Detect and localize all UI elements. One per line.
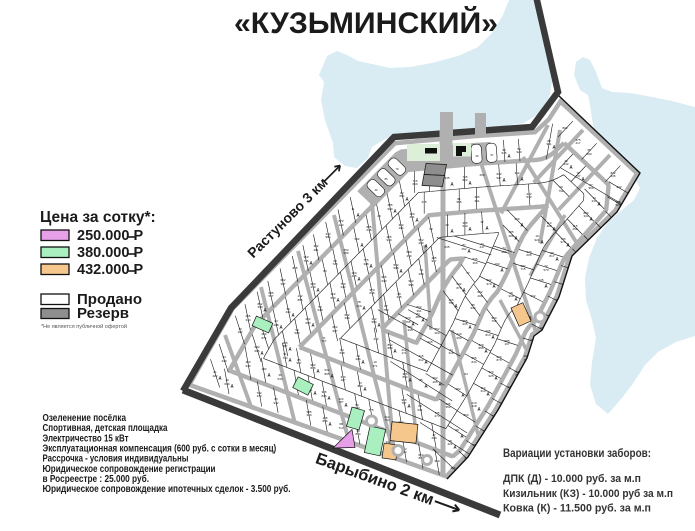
svg-text:435: 435 [396, 295, 401, 299]
svg-text:288: 288 [508, 234, 513, 238]
svg-text:57: 57 [490, 153, 494, 157]
svg-text:Д: Д [409, 378, 412, 382]
svg-text:Д: Д [337, 298, 340, 302]
svg-text:Д: Д [469, 181, 472, 185]
svg-text:Д: Д [261, 351, 264, 355]
svg-text:80: 80 [323, 269, 327, 273]
svg-text:917: 917 [431, 259, 436, 263]
svg-text:765: 765 [303, 259, 308, 263]
svg-text:451: 451 [409, 215, 414, 219]
svg-text:Д: Д [570, 165, 573, 169]
svg-text:Д: Д [412, 322, 415, 326]
svg-text:475: 475 [421, 200, 426, 204]
svg-text:Д: Д [317, 369, 320, 373]
svg-text:*Не является публичной офертой: *Не является публичной офертой [41, 323, 127, 330]
svg-text:Д: Д [362, 360, 365, 364]
svg-text:939: 939 [470, 306, 475, 310]
svg-text:550: 550 [371, 320, 376, 324]
svg-text:Д: Д [455, 304, 458, 308]
svg-text:447: 447 [479, 245, 484, 249]
svg-text:538: 538 [339, 351, 344, 355]
svg-text:640: 640 [462, 224, 467, 228]
svg-text:979: 979 [486, 282, 491, 286]
svg-text:530: 530 [526, 195, 531, 199]
svg-text:Д: Д [598, 202, 601, 206]
svg-text:Цена за сотку*:: Цена за сотку*: [40, 209, 156, 226]
svg-text:Д: Д [567, 243, 570, 247]
svg-text:859: 859 [357, 384, 362, 388]
svg-text:Д: Д [425, 244, 428, 248]
svg-text:Юридическое сопровождение ипот: Юридическое сопровождение ипотечных сдел… [43, 483, 291, 495]
svg-text:250.000 Р: 250.000 Р [77, 228, 143, 244]
svg-text:85: 85 [419, 378, 423, 382]
svg-text:Д: Д [486, 226, 489, 230]
svg-text:ДПК (Д) - 10.000 руб. за м.п: ДПК (Д) - 10.000 руб. за м.п [503, 473, 641, 485]
svg-text:252: 252 [572, 227, 577, 231]
svg-text:659: 659 [412, 182, 417, 186]
svg-text:«КУЗЬМИНСКИЙ»: «КУЗЬМИНСКИЙ» [234, 6, 498, 40]
svg-text:Д: Д [478, 407, 481, 411]
svg-text:37: 37 [480, 220, 484, 224]
svg-text:765: 765 [405, 320, 410, 324]
svg-text:498: 498 [273, 323, 278, 327]
svg-text:107: 107 [504, 342, 509, 346]
svg-text:960: 960 [387, 207, 392, 211]
svg-text:Кизильник (КЗ) - 10.000 руб за: Кизильник (КЗ) - 10.000 руб за м.п [503, 488, 673, 500]
svg-text:Д: Д [492, 335, 495, 339]
svg-text:787: 787 [401, 401, 406, 405]
svg-text:Д: Д [317, 288, 320, 292]
svg-text:Д: Д [361, 243, 364, 247]
svg-text:792: 792 [558, 189, 563, 193]
svg-text:Д: Д [406, 197, 409, 201]
svg-text:920: 920 [516, 150, 521, 154]
svg-text:269: 269 [431, 436, 436, 440]
svg-text:Д: Д [364, 387, 367, 391]
svg-text:418: 418 [471, 404, 476, 408]
svg-text:590: 590 [330, 296, 335, 300]
svg-text:653: 653 [305, 321, 310, 325]
svg-text:Д: Д [545, 284, 548, 288]
svg-text:Д: Д [363, 306, 366, 310]
svg-text:52: 52 [429, 227, 433, 231]
svg-text:Д: Д [378, 323, 381, 327]
svg-text:567: 567 [268, 294, 273, 298]
svg-text:107: 107 [340, 378, 345, 382]
svg-text:618: 618 [369, 291, 374, 295]
svg-text:430: 430 [221, 359, 226, 363]
svg-text:291: 291 [313, 248, 318, 252]
svg-text:940: 940 [245, 364, 250, 368]
svg-text:Д: Д [289, 358, 292, 362]
svg-text:171: 171 [401, 351, 406, 355]
svg-text:Резерв: Резерв [77, 305, 129, 322]
svg-text:122: 122 [338, 223, 343, 227]
svg-text:Д: Д [394, 209, 397, 213]
svg-text:975: 975 [501, 151, 506, 155]
svg-text:Д: Д [521, 223, 524, 227]
svg-text:342: 342 [514, 171, 519, 175]
svg-text:250: 250 [479, 173, 484, 177]
svg-text:313: 313 [480, 389, 485, 393]
svg-text:Д: Д [219, 376, 222, 380]
svg-text:162: 162 [237, 330, 242, 334]
svg-text:387: 387 [282, 344, 287, 348]
svg-text:Д: Д [358, 277, 361, 281]
svg-text:99: 99 [455, 428, 459, 432]
svg-text:125: 125 [538, 278, 543, 282]
svg-text:Д: Д [425, 360, 428, 364]
svg-text:543: 543 [277, 377, 282, 381]
svg-text:Д: Д [422, 318, 425, 322]
svg-text:57: 57 [466, 271, 470, 275]
svg-text:680: 680 [224, 382, 229, 386]
svg-text:Д: Д [370, 264, 373, 268]
svg-text:206: 206 [501, 250, 506, 254]
svg-text:Д: Д [553, 145, 556, 149]
svg-text:Д: Д [495, 376, 498, 380]
svg-text:157: 157 [338, 400, 343, 404]
svg-text:345: 345 [444, 176, 449, 180]
svg-text:Д: Д [515, 297, 518, 301]
svg-text:Д: Д [462, 393, 465, 397]
svg-text:Д: Д [400, 269, 403, 273]
svg-text:249: 249 [310, 285, 315, 289]
svg-text:612: 612 [418, 358, 423, 362]
svg-text:422: 422 [212, 374, 217, 378]
svg-text:Д: Д [503, 178, 506, 182]
svg-text:194: 194 [398, 226, 403, 230]
svg-text:408: 408 [477, 294, 482, 298]
svg-text:855: 855 [297, 298, 302, 302]
svg-text:589: 589 [343, 251, 348, 255]
svg-text:318: 318 [448, 351, 453, 355]
svg-text:585: 585 [456, 200, 461, 204]
svg-text:366: 366 [472, 261, 477, 265]
svg-text:301: 301 [474, 199, 479, 203]
svg-text:869: 869 [387, 346, 392, 350]
svg-text:160: 160 [494, 262, 499, 266]
svg-text:727: 727 [321, 339, 326, 343]
svg-text:950: 950 [588, 186, 593, 190]
svg-text:Д: Д [454, 445, 457, 449]
svg-text:Д: Д [264, 308, 267, 312]
svg-text:25: 25 [377, 214, 381, 218]
svg-text:Д: Д [231, 384, 234, 388]
svg-text:274: 274 [434, 414, 439, 418]
svg-text:753: 753 [383, 308, 388, 312]
svg-text:283: 283 [418, 241, 423, 245]
svg-text:698: 698 [393, 266, 398, 270]
svg-text:308: 308 [363, 262, 368, 266]
svg-text:Д: Д [289, 347, 292, 351]
svg-text:854: 854 [402, 375, 407, 379]
svg-text:532: 532 [354, 237, 359, 241]
svg-text:217: 217 [575, 141, 580, 145]
svg-text:642: 642 [563, 162, 568, 166]
svg-text:632: 632 [530, 294, 535, 298]
svg-text:973: 973 [560, 240, 565, 244]
svg-text:816: 816 [321, 394, 326, 398]
svg-text:350: 350 [257, 305, 262, 309]
svg-text:873: 873 [456, 286, 461, 290]
svg-text:Д: Д [556, 257, 559, 261]
svg-text:802: 802 [562, 126, 567, 130]
svg-text:436: 436 [418, 272, 423, 276]
svg-text:860: 860 [463, 413, 468, 417]
svg-text:442: 442 [340, 285, 345, 289]
svg-text:11: 11 [351, 207, 354, 211]
svg-text:421: 421 [447, 442, 452, 446]
svg-text:397: 397 [280, 282, 285, 286]
svg-text:445: 445 [610, 174, 615, 178]
svg-text:Д: Д [493, 284, 496, 288]
svg-text:380.000 Р: 380.000 Р [77, 245, 143, 261]
svg-text:482: 482 [261, 367, 266, 371]
svg-text:822: 822 [462, 178, 467, 182]
svg-text:Д: Д [312, 323, 315, 327]
svg-text:226: 226 [355, 357, 360, 361]
svg-text:856: 856 [478, 346, 483, 350]
svg-text:432.000 Р: 432.000 Р [77, 262, 143, 278]
svg-text:997: 997 [332, 329, 337, 333]
svg-text:631: 631 [417, 408, 422, 412]
svg-text:Д: Д [345, 403, 348, 407]
svg-text:Д: Д [521, 177, 524, 181]
svg-text:618: 618 [366, 228, 371, 232]
svg-text:203: 203 [434, 331, 439, 335]
svg-text:Д: Д [451, 182, 454, 186]
svg-text:960: 960 [434, 459, 439, 463]
svg-text:391: 391 [416, 309, 421, 313]
svg-text:794: 794 [384, 418, 389, 422]
svg-text:648: 648 [317, 308, 322, 312]
svg-text:Д: Д [469, 325, 472, 329]
svg-text:715: 715 [520, 267, 525, 271]
svg-text:919: 919 [508, 294, 513, 298]
svg-text:Д: Д [328, 396, 331, 400]
svg-text:Д: Д [469, 227, 472, 231]
svg-text:485: 485 [415, 315, 420, 319]
svg-text:173: 173 [256, 394, 261, 398]
svg-text:Д: Д [310, 261, 313, 265]
svg-text:814: 814 [485, 333, 490, 337]
svg-text:252: 252 [461, 247, 466, 251]
svg-text:Д: Д [485, 349, 488, 353]
svg-text:425: 425 [450, 466, 455, 470]
svg-text:Ковка (К) - 11.500 руб. за м.п: Ковка (К) - 11.500 руб. за м.п [503, 503, 651, 515]
svg-text:775: 775 [368, 408, 373, 412]
svg-text:960: 960 [514, 217, 519, 221]
svg-text:527: 527 [496, 176, 501, 180]
svg-text:64: 64 [464, 372, 468, 376]
svg-text:693: 693 [456, 336, 461, 340]
svg-text:403: 403 [546, 224, 551, 228]
svg-text:956: 956 [408, 283, 413, 287]
svg-text:Д: Д [408, 404, 411, 408]
svg-text:414: 414 [285, 310, 290, 314]
svg-text:747: 747 [575, 174, 580, 178]
svg-text:Эксплуатационная компенсация (: Эксплуатационная компенсация (600 руб. с… [43, 442, 277, 454]
svg-text:967: 967 [296, 361, 301, 365]
svg-text:Д: Д [394, 349, 397, 353]
svg-text:758: 758 [448, 301, 453, 305]
svg-text:Вариации установки заборов:: Вариации установки заборов: [503, 448, 651, 460]
svg-text:625: 625 [427, 340, 432, 344]
svg-text:590: 590 [586, 152, 591, 156]
svg-text:817: 817 [549, 254, 554, 258]
svg-text:Д: Д [463, 288, 466, 292]
svg-text:410: 410 [356, 304, 361, 308]
svg-text:336: 336 [344, 316, 349, 320]
svg-text:Д: Д [268, 373, 271, 377]
svg-text:734: 734 [282, 356, 287, 360]
svg-text:447: 447 [591, 199, 596, 203]
svg-text:Д: Д [487, 392, 490, 396]
svg-text:449: 449 [306, 413, 311, 417]
svg-text:871: 871 [261, 336, 266, 340]
svg-text:Д: Д [515, 236, 518, 240]
svg-text:932: 932 [273, 401, 278, 405]
svg-text:259: 259 [406, 254, 411, 258]
svg-text:895: 895 [324, 372, 329, 376]
svg-text:713: 713 [338, 426, 343, 430]
svg-text:921: 921 [534, 238, 539, 242]
svg-text:630: 630 [381, 279, 386, 283]
svg-text:26: 26 [475, 154, 479, 158]
svg-text:Д: Д [425, 384, 428, 388]
svg-text:Д: Д [416, 218, 419, 222]
svg-text:в Росреестре : 25.000 руб.: в Росреестре : 25.000 руб. [43, 473, 150, 485]
svg-text:682: 682 [455, 387, 460, 391]
svg-text:651: 651 [399, 194, 404, 198]
svg-text:242: 242 [616, 185, 621, 189]
svg-text:964: 964 [325, 235, 330, 239]
svg-text:Д: Д [461, 434, 464, 438]
svg-text:596: 596 [294, 331, 299, 335]
svg-text:40: 40 [374, 188, 378, 192]
svg-text:345: 345 [407, 328, 412, 332]
svg-text:Д: Д [357, 213, 360, 217]
svg-text:40: 40 [445, 223, 449, 227]
svg-text:695: 695 [526, 253, 531, 257]
svg-text:344: 344 [583, 214, 588, 218]
svg-text:344: 344 [245, 318, 250, 322]
svg-text:Д: Д [501, 268, 504, 272]
svg-text:925: 925 [488, 374, 493, 378]
svg-text:844: 844 [471, 360, 476, 364]
svg-text:635: 635 [444, 245, 449, 249]
svg-text:579: 579 [543, 268, 548, 272]
svg-text:Д: Д [508, 154, 511, 158]
svg-text:696: 696 [254, 349, 259, 353]
svg-text:Д: Д [553, 227, 556, 231]
svg-text:Д: Д [468, 249, 471, 253]
svg-text:Д: Д [541, 240, 544, 244]
svg-text:981: 981 [546, 142, 551, 146]
svg-text:835: 835 [292, 266, 297, 270]
svg-text:352: 352 [445, 405, 450, 409]
svg-text:Д: Д [582, 177, 585, 181]
svg-text:Д: Д [590, 217, 593, 221]
svg-text:874: 874 [355, 432, 360, 436]
svg-text:798: 798 [491, 319, 496, 323]
svg-text:Д: Д [331, 374, 334, 378]
svg-text:242: 242 [373, 337, 378, 341]
svg-text:465: 465 [432, 380, 437, 384]
svg-text:Д: Д [280, 325, 283, 329]
svg-text:Д: Д [329, 422, 332, 426]
svg-text:866: 866 [322, 419, 327, 423]
svg-text:371: 371 [372, 364, 377, 368]
svg-text:Д: Д [451, 229, 454, 233]
svg-text:Д: Д [314, 391, 317, 395]
svg-text:Д: Д [439, 382, 442, 386]
svg-text:Д: Д [292, 313, 295, 317]
svg-text:876: 876 [310, 366, 315, 370]
svg-text:225: 225 [351, 274, 356, 278]
svg-text:235: 235 [462, 322, 467, 326]
svg-text:879: 879 [496, 358, 501, 362]
svg-text:725: 725 [332, 262, 337, 266]
svg-text:939: 939 [386, 238, 391, 242]
svg-text:85: 85 [384, 177, 388, 181]
svg-text:79: 79 [395, 167, 399, 171]
